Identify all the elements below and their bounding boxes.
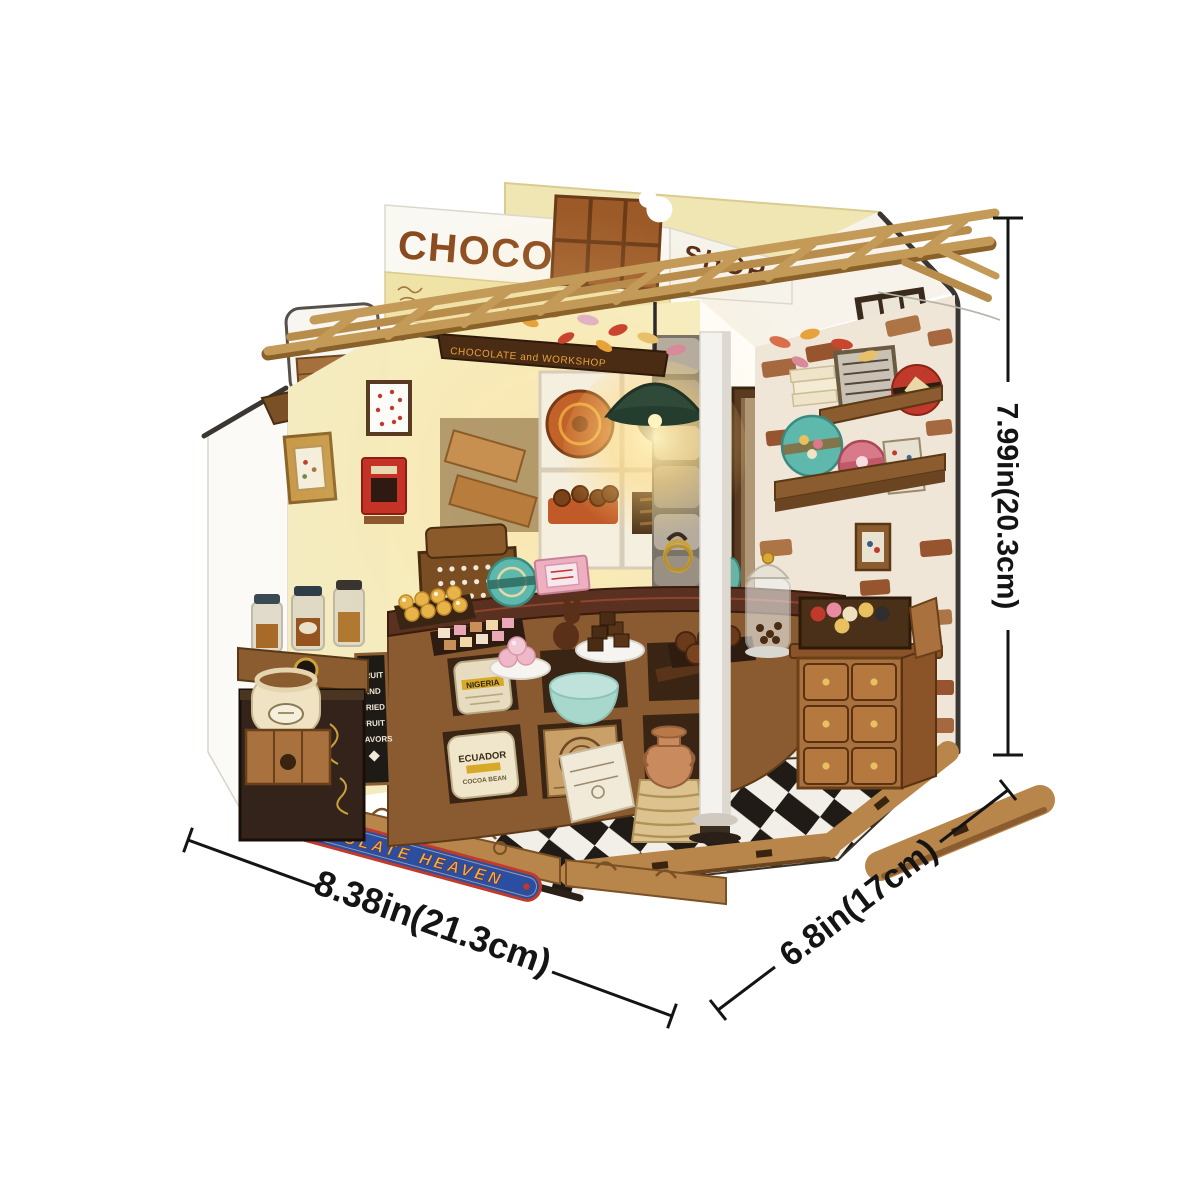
height-dimension: 7.99in(20.3cm) xyxy=(991,218,1024,755)
crate-lid-leaning xyxy=(910,598,942,658)
pink-gift-box xyxy=(534,555,589,594)
teal-round-box xyxy=(782,416,842,476)
left-cabinet-cluster xyxy=(238,580,368,840)
glass-jar-3 xyxy=(334,580,364,646)
wooden-crate xyxy=(246,730,330,784)
wicker-basket xyxy=(632,780,706,842)
teal-round-tin-sign xyxy=(488,558,537,606)
ecuador-sack: ECUADOR COCOA BEAN xyxy=(447,731,519,800)
flour-sack xyxy=(252,670,320,734)
red-dispenser-box xyxy=(362,458,406,524)
candy-crate xyxy=(800,598,942,658)
miniature-chocolate-shop-image: CHOCOLATE SHOP 1693 xyxy=(0,0,1200,1200)
alcove-chocolate-boxes xyxy=(440,418,542,532)
small-wall-frame xyxy=(856,524,890,570)
napkin-stack xyxy=(790,366,840,407)
candy-dresser xyxy=(790,598,942,788)
product-photo-stage: CHOCOLATE SHOP 1693 xyxy=(0,0,1200,1200)
red-pattern-frame xyxy=(368,382,410,434)
glass-jar-1 xyxy=(252,594,282,652)
height-dimension-label: 7.99in(20.3cm) xyxy=(991,403,1024,610)
glass-jar-2 xyxy=(292,586,324,650)
dispenser-bracket xyxy=(364,516,404,524)
